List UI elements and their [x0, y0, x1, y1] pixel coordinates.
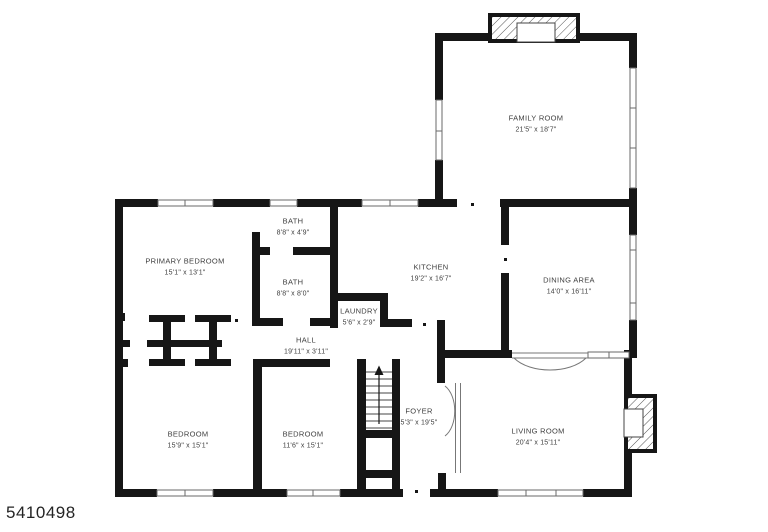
- room-label-primary-bedroom: PRIMARY BEDROOM 15'1" x 13'1": [145, 255, 224, 278]
- room-label-hall: HALL 19'11" x 3'11": [284, 334, 328, 357]
- room-dims: 19'11" x 3'11": [284, 346, 328, 357]
- family-room-fireplace: [490, 15, 578, 42]
- room-dims: 14'0" x 16'11": [543, 286, 595, 297]
- room-name: FAMILY ROOM: [509, 112, 564, 124]
- room-name: PRIMARY BEDROOM: [145, 255, 224, 267]
- staircase: [366, 366, 392, 429]
- door-markers: [235, 203, 507, 493]
- room-name: BEDROOM: [168, 428, 209, 440]
- room-name: BATH: [277, 276, 310, 288]
- room-dims: 19'2" x 16'7": [411, 273, 452, 284]
- arch-openings: [445, 353, 588, 473]
- room-name: DINING AREA: [543, 274, 595, 286]
- room-label-bedroom-2: BEDROOM 11'6" x 15'1": [283, 428, 324, 451]
- room-label-foyer: FOYER 5'3" x 19'5": [401, 405, 438, 428]
- room-name: FOYER: [401, 405, 438, 417]
- room-label-family-room: FAMILY ROOM 21'5" x 18'7": [509, 112, 564, 135]
- room-dims: 5'6" x 2'9": [340, 317, 378, 328]
- room-name: BEDROOM: [283, 428, 324, 440]
- room-dims: 11'6" x 15'1": [283, 440, 324, 451]
- floorplan-drawing: [0, 0, 768, 532]
- living-room-fireplace: [624, 396, 655, 451]
- room-dims: 8'8" x 8'0": [277, 288, 310, 299]
- room-name: LIVING ROOM: [511, 425, 564, 437]
- room-name: BATH: [277, 215, 310, 227]
- room-dims: 5'3" x 19'5": [401, 417, 438, 428]
- room-label-living-room: LIVING ROOM 20'4" x 15'11": [511, 425, 564, 448]
- room-label-bath-lower: BATH 8'8" x 8'0": [277, 276, 310, 299]
- room-label-bedroom-1: BEDROOM 15'9" x 15'1": [168, 428, 209, 451]
- room-label-bath-top: BATH 8'8" x 4'9": [277, 215, 310, 238]
- plan-id-text: 5410498: [6, 503, 76, 523]
- floorplan-page: FAMILY ROOM 21'5" x 18'7" BATH 8'8" x 4'…: [0, 0, 768, 532]
- room-name: LAUNDRY: [340, 305, 378, 317]
- room-label-dining-area: DINING AREA 14'0" x 16'11": [543, 274, 595, 297]
- room-dims: 8'8" x 4'9": [277, 227, 310, 238]
- room-dims: 21'5" x 18'7": [509, 124, 564, 135]
- room-dims: 20'4" x 15'11": [511, 437, 564, 448]
- room-label-laundry: LAUNDRY 5'6" x 2'9": [340, 305, 378, 328]
- room-dims: 15'1" x 13'1": [145, 267, 224, 278]
- stairs-up-arrow-icon: [375, 366, 384, 425]
- room-label-kitchen: KITCHEN 19'2" x 16'7": [411, 261, 452, 284]
- room-name: KITCHEN: [411, 261, 452, 273]
- room-dims: 15'9" x 15'1": [168, 440, 209, 451]
- room-name: HALL: [284, 334, 328, 346]
